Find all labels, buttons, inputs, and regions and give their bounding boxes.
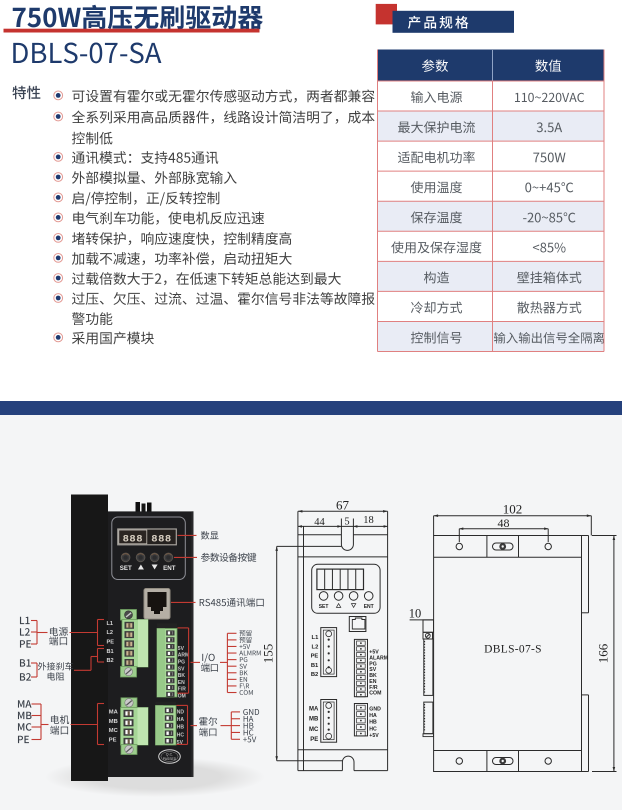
svg-text:DBLS-07-S: DBLS-07-S <box>484 644 542 656</box>
svg-text:L2: L2 <box>312 644 319 650</box>
svg-text:SET: SET <box>319 604 329 610</box>
svg-text:MC: MC <box>309 727 319 733</box>
svg-text:10: 10 <box>409 607 422 621</box>
svg-text:5V: 5V <box>178 646 185 652</box>
svg-text:ENT: ENT <box>364 604 374 610</box>
svg-text:B2: B2 <box>107 658 114 664</box>
svg-text:ARM: ARM <box>178 653 189 659</box>
svg-text:MC: MC <box>109 728 119 734</box>
svg-text:SET: SET <box>120 565 132 572</box>
svg-text:COM: COM <box>369 691 381 697</box>
svg-text:HB: HB <box>369 720 377 726</box>
svg-text:155: 155 <box>261 644 276 664</box>
svg-text:MB: MB <box>109 719 118 725</box>
svg-text:PE: PE <box>109 738 117 744</box>
svg-text:888: 888 <box>123 534 143 546</box>
svg-text:B1: B1 <box>311 663 319 669</box>
svg-text:48: 48 <box>498 516 510 530</box>
svg-text:102: 102 <box>503 502 523 517</box>
svg-text:166: 166 <box>596 643 611 663</box>
svg-text:BK: BK <box>178 673 186 679</box>
svg-text:PE: PE <box>311 654 319 660</box>
svg-text:HA: HA <box>369 713 377 719</box>
svg-text:ND: ND <box>177 710 185 716</box>
svg-text:888: 888 <box>151 534 171 546</box>
svg-text:HB: HB <box>177 725 185 731</box>
svg-text:HC: HC <box>369 726 377 732</box>
svg-text:MA: MA <box>109 710 119 716</box>
svg-text:+5V: +5V <box>369 733 379 739</box>
svg-text:ENT: ENT <box>163 565 176 572</box>
svg-text:5V: 5V <box>177 740 184 746</box>
svg-text:PASSED: PASSED <box>163 757 177 761</box>
svg-text:HC: HC <box>177 732 185 738</box>
svg-text:B2: B2 <box>311 672 318 678</box>
svg-text:GND: GND <box>369 706 381 712</box>
svg-text:PE: PE <box>310 737 318 743</box>
svg-text:67: 67 <box>336 498 350 513</box>
svg-text:B1: B1 <box>107 649 114 655</box>
svg-text:L2: L2 <box>107 630 114 636</box>
svg-text:L1: L1 <box>107 621 114 627</box>
svg-text:HA: HA <box>177 717 185 723</box>
svg-text:OM: OM <box>178 694 186 700</box>
svg-text:18: 18 <box>363 515 374 526</box>
svg-text:EN: EN <box>178 680 185 686</box>
svg-text:MA: MA <box>309 706 319 712</box>
svg-text:MB: MB <box>309 717 319 723</box>
svg-text:L1: L1 <box>312 635 320 641</box>
svg-text:PG: PG <box>178 659 185 665</box>
svg-text:F/R: F/R <box>178 687 186 693</box>
svg-text:PE: PE <box>107 640 115 646</box>
svg-text:5: 5 <box>344 517 349 528</box>
svg-text:SV: SV <box>178 666 185 672</box>
